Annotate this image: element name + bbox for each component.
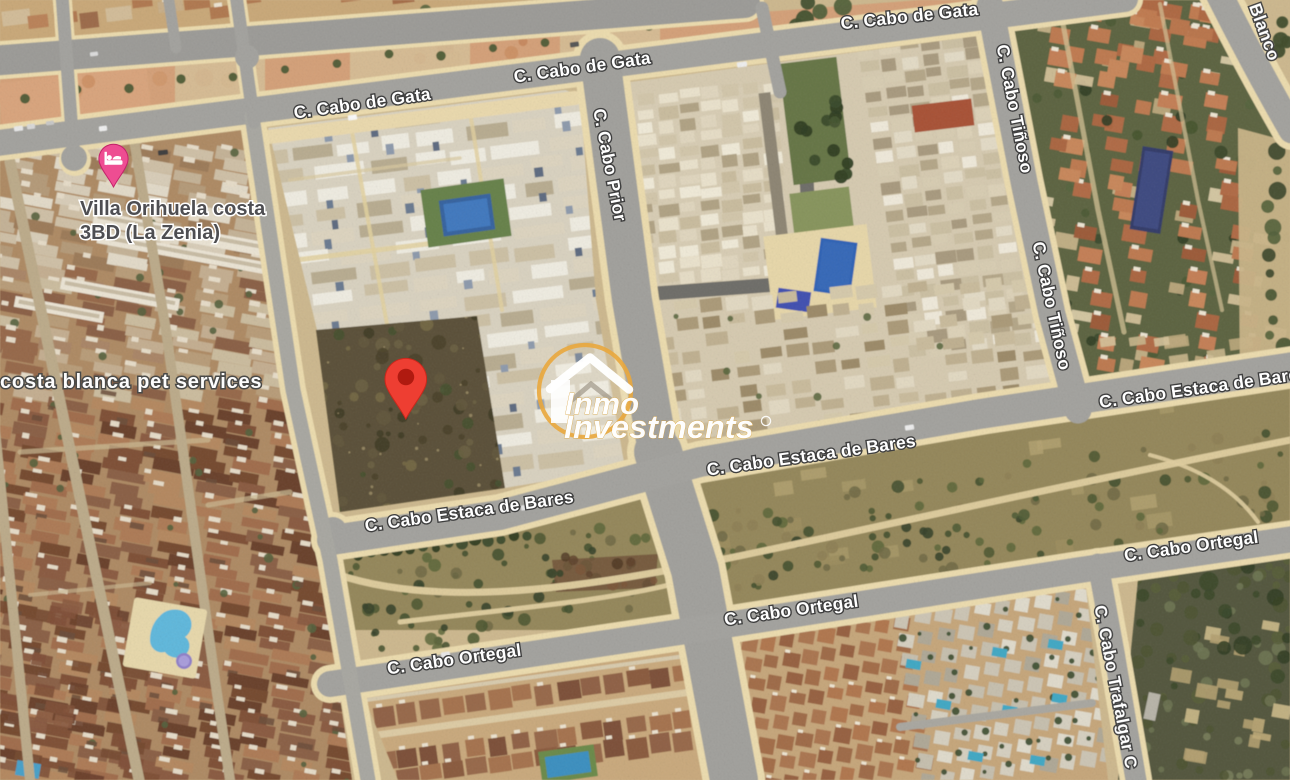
svg-text:Villa Orihuela costa: Villa Orihuela costa [80, 198, 266, 220]
svg-text:Investments: Investments [564, 409, 754, 445]
svg-text:3BD (La Zenia): 3BD (La Zenia) [80, 222, 220, 244]
svg-text:costa blanca pet services: costa blanca pet services [0, 371, 262, 393]
